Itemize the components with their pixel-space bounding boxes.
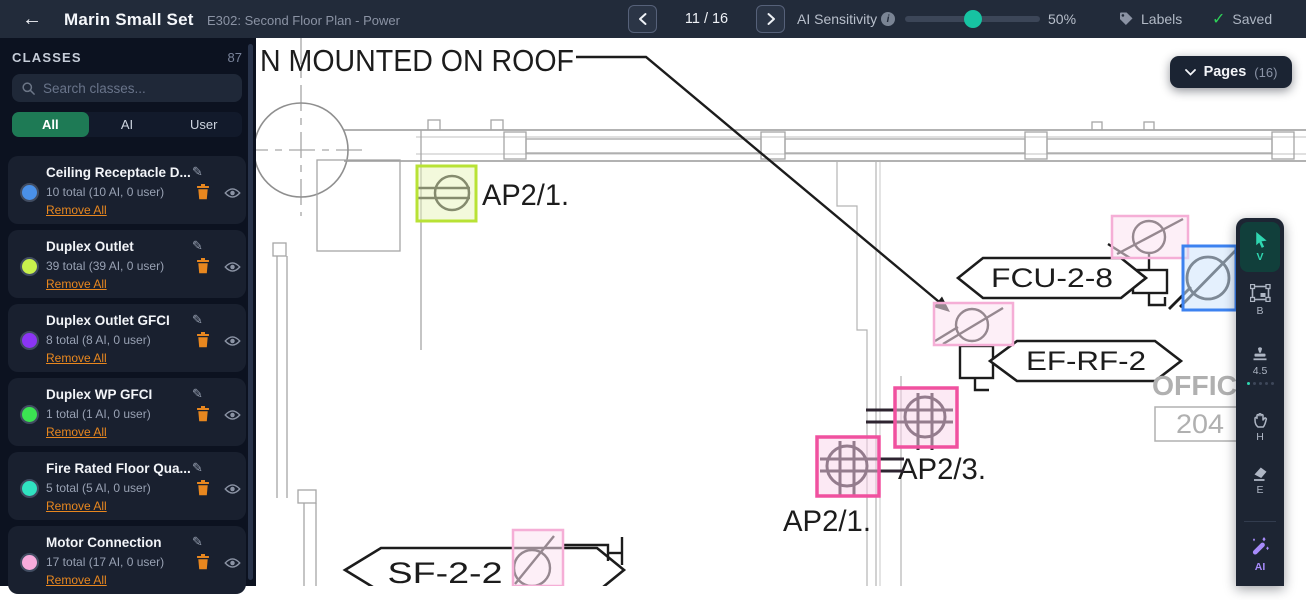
- fcu-tag-text: FCU-2-8: [991, 263, 1113, 293]
- next-page-button[interactable]: [756, 5, 785, 33]
- roof-note-text: N MOUNTED ON ROOF: [260, 43, 574, 78]
- labels-button-label: Labels: [1141, 11, 1182, 27]
- annotation-motor-ef[interactable]: [934, 303, 1013, 345]
- remove-all-link[interactable]: Remove All: [46, 351, 107, 365]
- edit-pencil-icon[interactable]: ✎: [192, 386, 203, 402]
- class-card[interactable]: Duplex WP GFCI ✎ 1 total (1 AI, 0 user) …: [8, 378, 246, 446]
- class-name: Motor Connection: [46, 535, 161, 550]
- class-color-dot: [20, 405, 39, 424]
- pages-button-label: Pages: [1204, 64, 1247, 80]
- project-title: Marin Small Set: [64, 10, 194, 30]
- hand-tool[interactable]: H: [1236, 410, 1284, 443]
- cursor-icon: [1252, 231, 1269, 249]
- labels-button[interactable]: Labels: [1118, 0, 1182, 38]
- class-name: Fire Rated Floor Qua...: [46, 461, 186, 476]
- prev-page-button[interactable]: [628, 5, 657, 33]
- classes-total-count: 87: [228, 50, 242, 65]
- sf-tag-text: SF-2-2: [388, 557, 503, 586]
- visibility-eye-icon[interactable]: [224, 334, 241, 352]
- ai-sensitivity-value: 50%: [1048, 11, 1076, 27]
- edit-pencil-icon[interactable]: ✎: [192, 312, 203, 328]
- ai-tool-label: AI: [1255, 561, 1266, 573]
- classes-sidebar: CLASSES 87 All AI User Ceiling Receptacl…: [0, 38, 256, 586]
- edit-pencil-icon[interactable]: ✎: [192, 238, 203, 254]
- hand-icon: [1251, 410, 1269, 428]
- class-count: 17 total (17 AI, 0 user): [46, 555, 164, 569]
- class-card[interactable]: Ceiling Receptacle D... ✎ 10 total (10 A…: [8, 156, 246, 224]
- trash-icon[interactable]: [196, 554, 210, 575]
- class-count: 5 total (5 AI, 0 user): [46, 481, 151, 495]
- sheet-subtitle: E302: Second Floor Plan - Power: [207, 13, 400, 28]
- class-card[interactable]: Duplex Outlet ✎ 39 total (39 AI, 0 user)…: [8, 230, 246, 298]
- visibility-eye-icon[interactable]: [224, 556, 241, 574]
- edit-pencil-icon[interactable]: ✎: [192, 460, 203, 476]
- chevron-right-icon: [765, 12, 777, 26]
- ap23-label: AP2/3.: [898, 453, 986, 486]
- class-name: Duplex Outlet: [46, 239, 134, 254]
- trash-icon[interactable]: [196, 406, 210, 427]
- trash-icon[interactable]: [196, 184, 210, 205]
- stamp-size-dots: [1247, 382, 1274, 385]
- trash-icon[interactable]: [196, 258, 210, 279]
- class-count: 1 total (1 AI, 0 user): [46, 407, 151, 421]
- class-count: 39 total (39 AI, 0 user): [46, 259, 164, 273]
- tag-icon: [1118, 11, 1134, 27]
- eraser-shortcut: E: [1256, 484, 1263, 496]
- edit-pencil-icon[interactable]: ✎: [192, 534, 203, 550]
- visibility-eye-icon[interactable]: [224, 186, 241, 204]
- annotation-motor-fcu[interactable]: [1112, 216, 1188, 258]
- class-color-dot: [20, 331, 39, 350]
- visibility-eye-icon[interactable]: [224, 408, 241, 426]
- trash-icon[interactable]: [196, 480, 210, 501]
- tab-user[interactable]: User: [165, 112, 242, 137]
- leader-arrow: [576, 57, 944, 306]
- class-card[interactable]: Duplex Outlet GFCI ✎ 8 total (8 AI, 0 us…: [8, 304, 246, 372]
- class-name: Duplex WP GFCI: [46, 387, 152, 402]
- tab-all[interactable]: All: [12, 112, 89, 137]
- magic-wand-icon: [1249, 536, 1271, 558]
- remove-all-link[interactable]: Remove All: [46, 203, 107, 217]
- class-count: 8 total (8 AI, 0 user): [46, 333, 151, 347]
- annotation-duplex-outlet[interactable]: [417, 166, 476, 221]
- filter-tabs: All AI User: [12, 112, 242, 137]
- class-name: Duplex Outlet GFCI: [46, 313, 170, 328]
- ef-tag-text: EF-RF-2: [1026, 346, 1146, 376]
- bounding-box-icon: [1250, 284, 1271, 302]
- room-number-text: 204: [1176, 409, 1224, 439]
- search-icon: [21, 81, 36, 96]
- page-indicator: 11 / 16: [657, 0, 756, 38]
- box-shortcut: B: [1256, 305, 1263, 317]
- visibility-eye-icon[interactable]: [224, 482, 241, 500]
- top-bar: ← Marin Small Set E302: Second Floor Pla…: [0, 0, 1306, 38]
- check-icon: ✓: [1212, 9, 1225, 29]
- class-name: Ceiling Receptacle D...: [46, 165, 186, 180]
- class-color-dot: [20, 257, 39, 276]
- pages-button[interactable]: Pages (16): [1170, 56, 1292, 88]
- outlet-label-top: AP2/1.: [482, 179, 569, 212]
- back-button[interactable]: ←: [20, 7, 44, 31]
- stamp-tool[interactable]: 4.5: [1236, 346, 1284, 385]
- class-list: Ceiling Receptacle D... ✎ 10 total (10 A…: [8, 156, 246, 600]
- class-card[interactable]: Fire Rated Floor Qua... ✎ 5 total (5 AI,…: [8, 452, 246, 520]
- classes-header: CLASSES: [12, 50, 82, 65]
- annotation-junction-selected[interactable]: [1183, 246, 1236, 310]
- select-shortcut: V: [1256, 251, 1263, 263]
- class-color-dot: [20, 553, 39, 572]
- annotation-motor-sf[interactable]: [513, 530, 563, 586]
- stamp-value: 4.5: [1253, 365, 1268, 377]
- remove-all-link[interactable]: Remove All: [46, 573, 107, 587]
- slider-thumb[interactable]: [964, 10, 982, 28]
- floor-plan: N MOUNTED ON ROOF AP2/1. FCU-2-8 EF-RF-2…: [256, 38, 1306, 586]
- remove-all-link[interactable]: Remove All: [46, 425, 107, 439]
- ap21-label: AP2/1.: [783, 505, 871, 538]
- sidebar-scrollbar[interactable]: [248, 44, 253, 580]
- remove-all-link[interactable]: Remove All: [46, 499, 107, 513]
- select-tool-active[interactable]: V: [1240, 222, 1280, 272]
- drawing-canvas[interactable]: N MOUNTED ON ROOF AP2/1. FCU-2-8 EF-RF-2…: [256, 38, 1306, 586]
- edit-pencil-icon[interactable]: ✎: [192, 164, 203, 180]
- chevron-left-icon: [637, 12, 649, 26]
- ai-sensitivity-label: AI Sensitivity: [797, 11, 877, 27]
- class-color-dot: [20, 183, 39, 202]
- saved-status: ✓ Saved: [1212, 0, 1272, 38]
- class-color-dot: [20, 479, 39, 498]
- saved-status-label: Saved: [1232, 11, 1272, 27]
- tool-divider: [1244, 521, 1276, 522]
- box-tool[interactable]: B: [1236, 284, 1284, 317]
- annotation-receptacle-ap23[interactable]: [895, 388, 957, 447]
- class-card[interactable]: Motor Connection ✎ 17 total (17 AI, 0 us…: [8, 526, 246, 594]
- class-search[interactable]: [12, 74, 242, 102]
- ai-tool[interactable]: AI: [1236, 536, 1284, 573]
- visibility-eye-icon[interactable]: [224, 260, 241, 278]
- remove-all-link[interactable]: Remove All: [46, 277, 107, 291]
- search-input[interactable]: [43, 81, 223, 96]
- ai-sensitivity-slider[interactable]: [905, 16, 1040, 22]
- annotation-receptacle-ap21[interactable]: [817, 437, 879, 496]
- class-count: 10 total (10 AI, 0 user): [46, 185, 164, 199]
- tool-rail: V B 4.5 H: [1236, 218, 1284, 586]
- pages-count: (16): [1254, 65, 1277, 80]
- chevron-down-icon: [1185, 69, 1196, 76]
- hand-shortcut: H: [1256, 431, 1264, 443]
- trash-icon[interactable]: [196, 332, 210, 353]
- stamp-icon: [1250, 346, 1270, 362]
- tab-ai[interactable]: AI: [89, 112, 166, 137]
- info-icon[interactable]: i: [881, 12, 895, 26]
- eraser-tool[interactable]: E: [1236, 464, 1284, 496]
- eraser-icon: [1251, 464, 1269, 481]
